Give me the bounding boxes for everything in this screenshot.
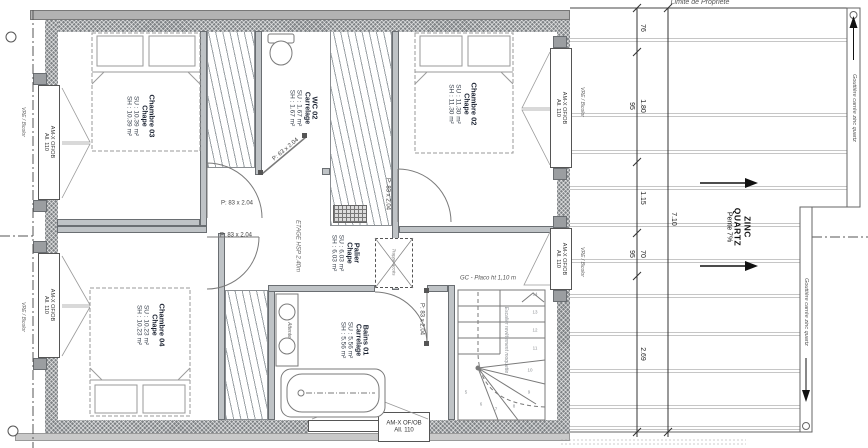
door-label-wc: P: 63 x 2.04: [272, 137, 301, 163]
room-name: Chambre 04: [157, 298, 165, 352]
roof-seam: [570, 294, 800, 298]
tread-number: 7: [495, 407, 498, 412]
room-name: Bains 01: [361, 313, 369, 367]
room-su: SU : 1.67 m²: [295, 81, 302, 135]
dim-95b: 95: [627, 250, 635, 258]
shutter-note: VRE / Bicolor: [578, 247, 584, 277]
room-label-chambre-03: Chambre 03 Chape SU : 10.39 m² SH : 10.3…: [125, 89, 156, 143]
room-finish: Chape: [461, 77, 469, 131]
partition-ch04-east: [218, 233, 225, 420]
room-su: SU : 11.30 m²: [454, 77, 461, 131]
exterior-wall-south: [45, 420, 308, 433]
partition-wc-south: [322, 168, 330, 175]
window-type: AM-X OF/OB: [49, 126, 55, 158]
partition-bath-north: [268, 285, 375, 292]
tread-number: 11: [533, 346, 538, 351]
roof-seam: [570, 113, 847, 117]
room-finish: Chape: [149, 298, 157, 352]
property-limit-label: Limite de Propriété: [671, 0, 730, 7]
stair-note: Escalier revêtement moquette: [502, 307, 508, 373]
dim-95a: 95: [627, 102, 635, 110]
shutter-stub: [553, 290, 567, 302]
room-label-wc-02: WC 02 Carrelage SU : 1.67 m² SH : 1.67 m…: [288, 81, 319, 135]
roof-seam: [570, 223, 800, 227]
roof-seam: [570, 186, 847, 190]
shutter-note: VRE / Bicolor: [578, 87, 584, 117]
roof-seam: [570, 405, 800, 409]
gutter-right-lower: [570, 207, 860, 432]
room-finish: Chape: [344, 228, 352, 278]
window-sill: All. 110: [43, 126, 49, 158]
roof-seam: [570, 426, 800, 430]
floor-height-note: ETAGE HSP 2.40m: [294, 220, 301, 272]
roof-seam: [570, 150, 847, 154]
room-sh: SH : 6.03 m²: [330, 228, 337, 278]
bath-wait-note: Attente: [285, 322, 291, 338]
partition-bath-west: [268, 290, 275, 420]
bathtub: [281, 369, 385, 417]
duct-block: [333, 205, 367, 223]
room-sh: SH : 5.56 m²: [339, 313, 346, 367]
shutter-note: VRE / Bicolor: [19, 302, 25, 332]
room-sh: SH : 10.39 m²: [125, 89, 132, 143]
roof-seam: [570, 38, 847, 42]
door-label-ch03: P: 83 x 2.04: [221, 201, 253, 208]
room-finish: Carrelage: [353, 313, 361, 367]
exterior-wall-north: [45, 20, 570, 32]
window-type: AM-X OF/OB: [561, 243, 567, 275]
room-name: Chambre 03: [147, 89, 155, 143]
window-label-ch02: AM-X OF/OB All. 110: [555, 92, 567, 124]
room-label-bains-01: Bains 01 Carrelage SU : 5.56 m² SH : 5.5…: [339, 313, 370, 367]
door-ch02: [398, 169, 451, 222]
closet-strip-left: [207, 31, 255, 168]
room-name: Palier: [352, 228, 360, 278]
tread-number: 10: [527, 368, 532, 373]
tread-number: 12: [532, 328, 537, 333]
door-ch04: [207, 237, 259, 289]
dim-115: 1.15: [638, 191, 646, 205]
floor-plan-sheet: Chambre 03 Chape SU : 10.39 m² SH : 10.3…: [0, 0, 868, 448]
window-label-ch03: AM-X OF/OB All. 110: [43, 126, 55, 158]
roof-seam: [570, 369, 800, 373]
tread-number: 6: [480, 402, 483, 407]
door-label-ch02: P: 83 x 2.04: [384, 178, 391, 210]
room-su: SU : 10.39 m²: [132, 89, 139, 143]
exterior-wall-south: [430, 420, 570, 433]
closet-strip-bottom: [225, 290, 268, 420]
toilet: [268, 34, 294, 65]
room-sh: SH : 10.23 m²: [135, 298, 142, 352]
partition-stair-west: [448, 285, 455, 420]
tread-number: 9: [528, 390, 531, 395]
window-type: AM-X OF/OB: [386, 420, 421, 427]
shutter-note: VRE / Bicolor: [19, 107, 25, 137]
shutter-stub: [553, 36, 567, 48]
neighbour-wall-bottom: [15, 433, 570, 441]
shutter-stub: [33, 241, 47, 253]
partition-ch02-south: [399, 226, 557, 233]
tread-number: 13: [532, 310, 537, 315]
tread-number: 14: [532, 292, 537, 297]
partition-wc-west: [255, 31, 262, 175]
shutter-stub: [33, 200, 47, 212]
guardrail-label: GC - Placo ht 1,10 m: [460, 276, 516, 283]
room-finish: Carrelage: [302, 81, 310, 135]
window-label-ch04: AM-X OF/OB All. 110: [43, 289, 55, 321]
window-type: AM-X OF/OB: [49, 289, 55, 321]
tread-number: 8: [513, 404, 516, 409]
room-su: SU : 6.03 m²: [337, 228, 344, 278]
window-type: AM-X OF/OB: [561, 92, 567, 124]
shutter-stub: [33, 358, 47, 370]
window-sill: All. 110: [386, 427, 421, 434]
roof-slope: Pente 7%: [725, 208, 733, 246]
door-label-ch04: P: 83 x 2.04: [220, 233, 252, 240]
room-sh: SH : 11.30 m²: [447, 77, 454, 131]
dim-76: 76: [638, 24, 646, 32]
roof-seam: [570, 259, 800, 263]
roof-material-line2: QUARTZ: [732, 208, 742, 246]
gutter-label-lower: Gouttière carrée zinc quartz: [803, 278, 809, 346]
shutter-stub: [33, 73, 47, 85]
dim-70: 70: [638, 250, 646, 258]
roof-seam: [570, 332, 800, 336]
gutter-label-upper: Gouttière carrée zinc quartz: [851, 74, 857, 142]
window-sill: All. 110: [555, 243, 561, 275]
room-su: SU : 10.23 m²: [142, 298, 149, 352]
neighbour-wall-top: [30, 10, 570, 20]
room-label-chambre-04: Chambre 04 Chape SU : 10.23 m² SH : 10.2…: [135, 298, 166, 352]
ground-texture: [560, 438, 746, 447]
door-label-bains: P: 83 x 2.04: [418, 303, 425, 335]
trap-label: Trappe accès: [391, 249, 396, 276]
window-sill: All. 110: [555, 92, 561, 124]
window-label-bains: AM-X OF/OB All. 110: [386, 420, 421, 433]
door-ch03: [207, 163, 262, 218]
partition-ch03-east: [200, 31, 207, 226]
room-name: WC 02: [310, 81, 318, 135]
window-sill: All. 110: [43, 289, 49, 321]
dim-269: 2.69: [638, 347, 646, 361]
tread-number: 5: [465, 390, 468, 395]
room-label-palier: Palier Chape SU : 6.03 m² SH : 6.03 m²: [330, 228, 361, 278]
dim-total-710: 7.10: [669, 212, 677, 226]
window-label-palier: AM-X OF/OB All. 110: [555, 243, 567, 275]
room-label-chambre-02: Chambre 02 Chape SU : 11.30 m² SH : 11.3…: [447, 77, 478, 131]
partition-bath-north: [427, 285, 448, 292]
roof-material-label: ZINC QUARTZ Pente 7%: [725, 208, 752, 246]
shutter-stub: [553, 168, 567, 180]
dim-180: 1.80: [638, 99, 646, 113]
partition-ch03-south: [57, 219, 200, 226]
roof-material-line1: ZINC: [742, 208, 752, 246]
partition-ch04-north: [57, 226, 207, 233]
shutter-stub: [553, 216, 567, 228]
room-finish: Chape: [139, 89, 147, 143]
room-su: SU : 5.56 m²: [346, 313, 353, 367]
room-name: Chambre 02: [469, 77, 477, 131]
room-sh: SH : 1.67 m²: [288, 81, 295, 135]
exterior-wall-east: [557, 290, 570, 433]
